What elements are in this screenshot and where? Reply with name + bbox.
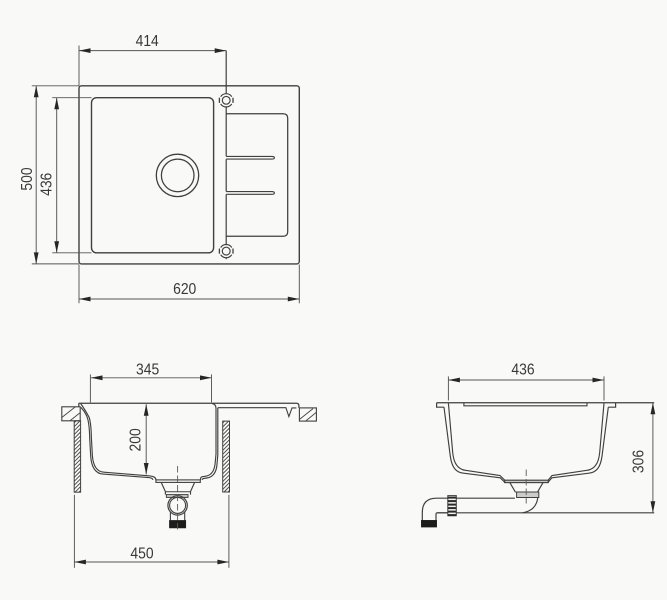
svg-text:414: 414: [136, 33, 159, 50]
svg-text:306: 306: [631, 450, 648, 473]
svg-text:436: 436: [511, 362, 534, 379]
svg-text:450: 450: [130, 546, 153, 563]
svg-text:620: 620: [173, 281, 196, 298]
svg-text:500: 500: [19, 167, 36, 190]
svg-text:345: 345: [136, 362, 159, 379]
svg-text:200: 200: [128, 428, 145, 451]
svg-text:436: 436: [39, 173, 56, 196]
